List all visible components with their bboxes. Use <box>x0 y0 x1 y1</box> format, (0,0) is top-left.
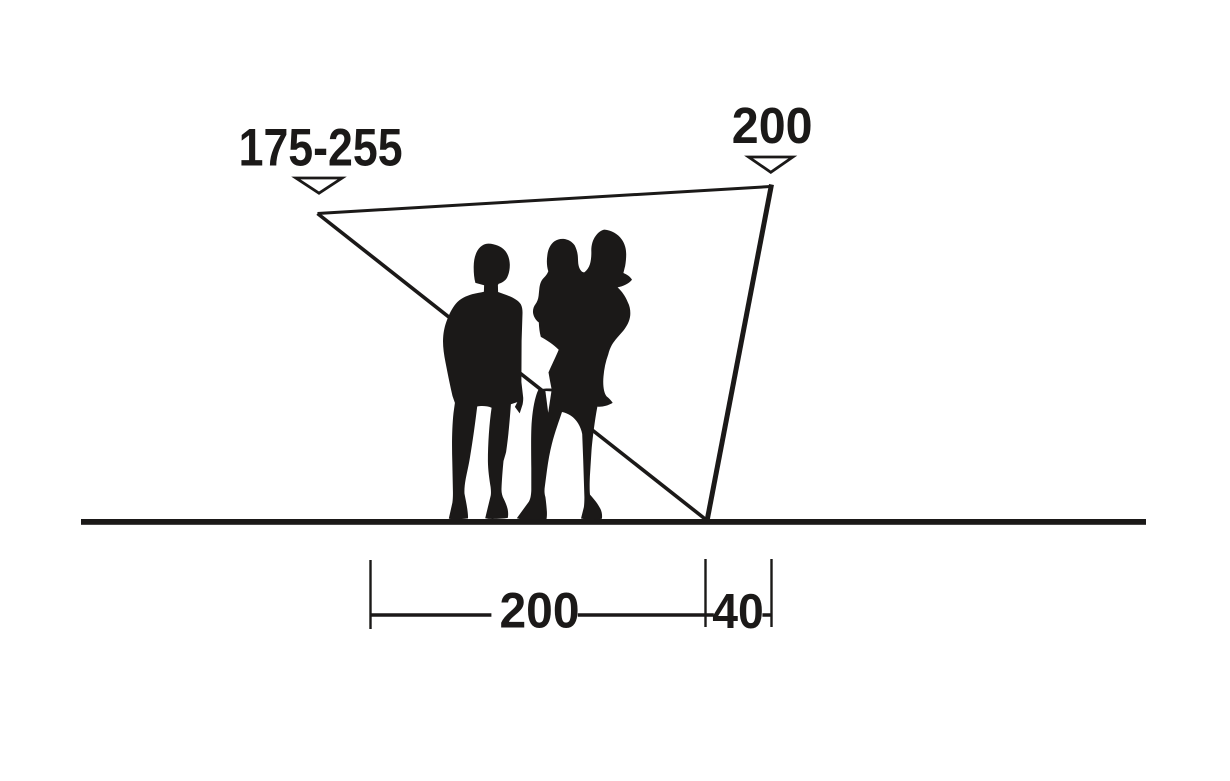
svg-text:200: 200 <box>732 97 813 154</box>
svg-text:40: 40 <box>712 585 764 639</box>
svg-text:175-255: 175-255 <box>239 119 403 178</box>
svg-text:200: 200 <box>500 582 580 638</box>
